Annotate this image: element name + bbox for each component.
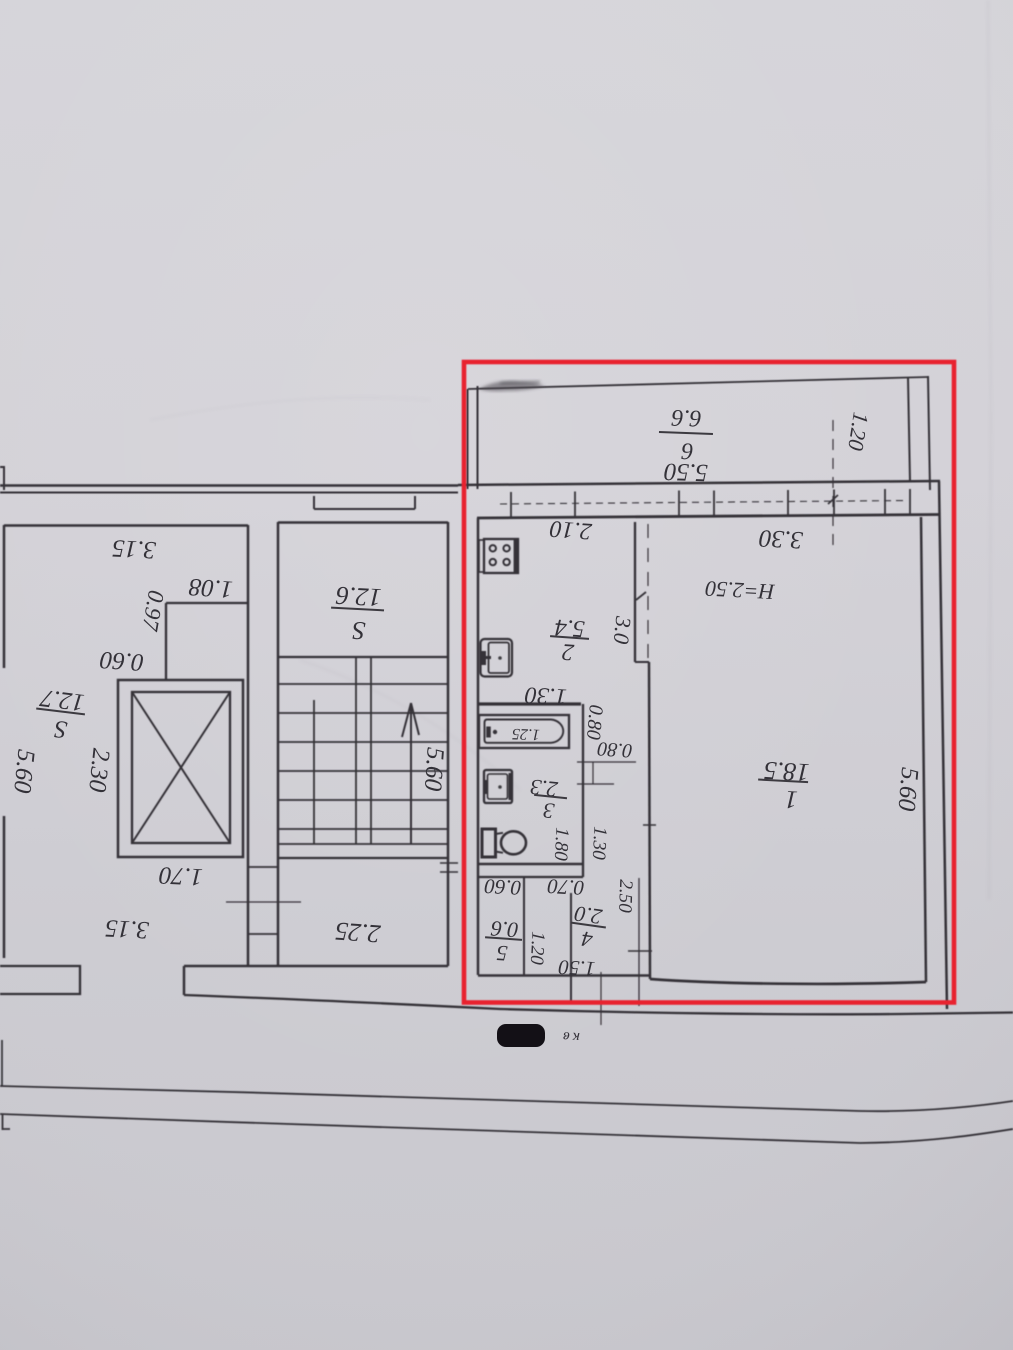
svg-text:3.15: 3.15 — [104, 914, 150, 943]
svg-text:0.80: 0.80 — [582, 704, 607, 741]
svg-text:1.20: 1.20 — [526, 931, 549, 966]
svg-text:кв: кв — [560, 1028, 580, 1045]
svg-text:1: 1 — [784, 785, 798, 815]
svg-text:0.70: 0.70 — [546, 874, 584, 900]
svg-text:2.3: 2.3 — [529, 774, 559, 802]
svg-text:2: 2 — [561, 638, 575, 665]
svg-text:1.08: 1.08 — [188, 573, 234, 603]
svg-text:0.80: 0.80 — [597, 737, 633, 761]
svg-text:2.10: 2.10 — [549, 515, 593, 544]
svg-text:3.15: 3.15 — [111, 534, 157, 563]
svg-text:5: 5 — [496, 941, 509, 967]
svg-text:S: S — [352, 616, 366, 646]
svg-text:H=2.50: H=2.50 — [705, 576, 776, 605]
svg-text:1.30: 1.30 — [524, 681, 567, 709]
svg-text:3.30: 3.30 — [758, 524, 805, 553]
svg-text:2.30: 2.30 — [83, 747, 114, 794]
svg-text:0.60: 0.60 — [483, 874, 521, 900]
svg-text:1.25: 1.25 — [512, 725, 541, 743]
svg-text:1.30: 1.30 — [588, 826, 611, 861]
svg-text:2.50: 2.50 — [614, 879, 636, 913]
svg-text:1.50: 1.50 — [557, 955, 595, 981]
svg-text:5.60: 5.60 — [8, 748, 39, 795]
svg-text:1.70: 1.70 — [158, 861, 204, 890]
svg-text:5.50: 5.50 — [663, 457, 708, 486]
svg-text:0.60: 0.60 — [99, 646, 145, 676]
svg-text:3.0: 3.0 — [609, 614, 637, 645]
svg-text:2.25: 2.25 — [334, 916, 381, 948]
svg-text:5.60: 5.60 — [892, 766, 923, 812]
svg-text:1.80: 1.80 — [550, 827, 573, 862]
svg-text:6.6: 6.6 — [671, 404, 702, 431]
svg-text:5.60: 5.60 — [419, 746, 449, 792]
